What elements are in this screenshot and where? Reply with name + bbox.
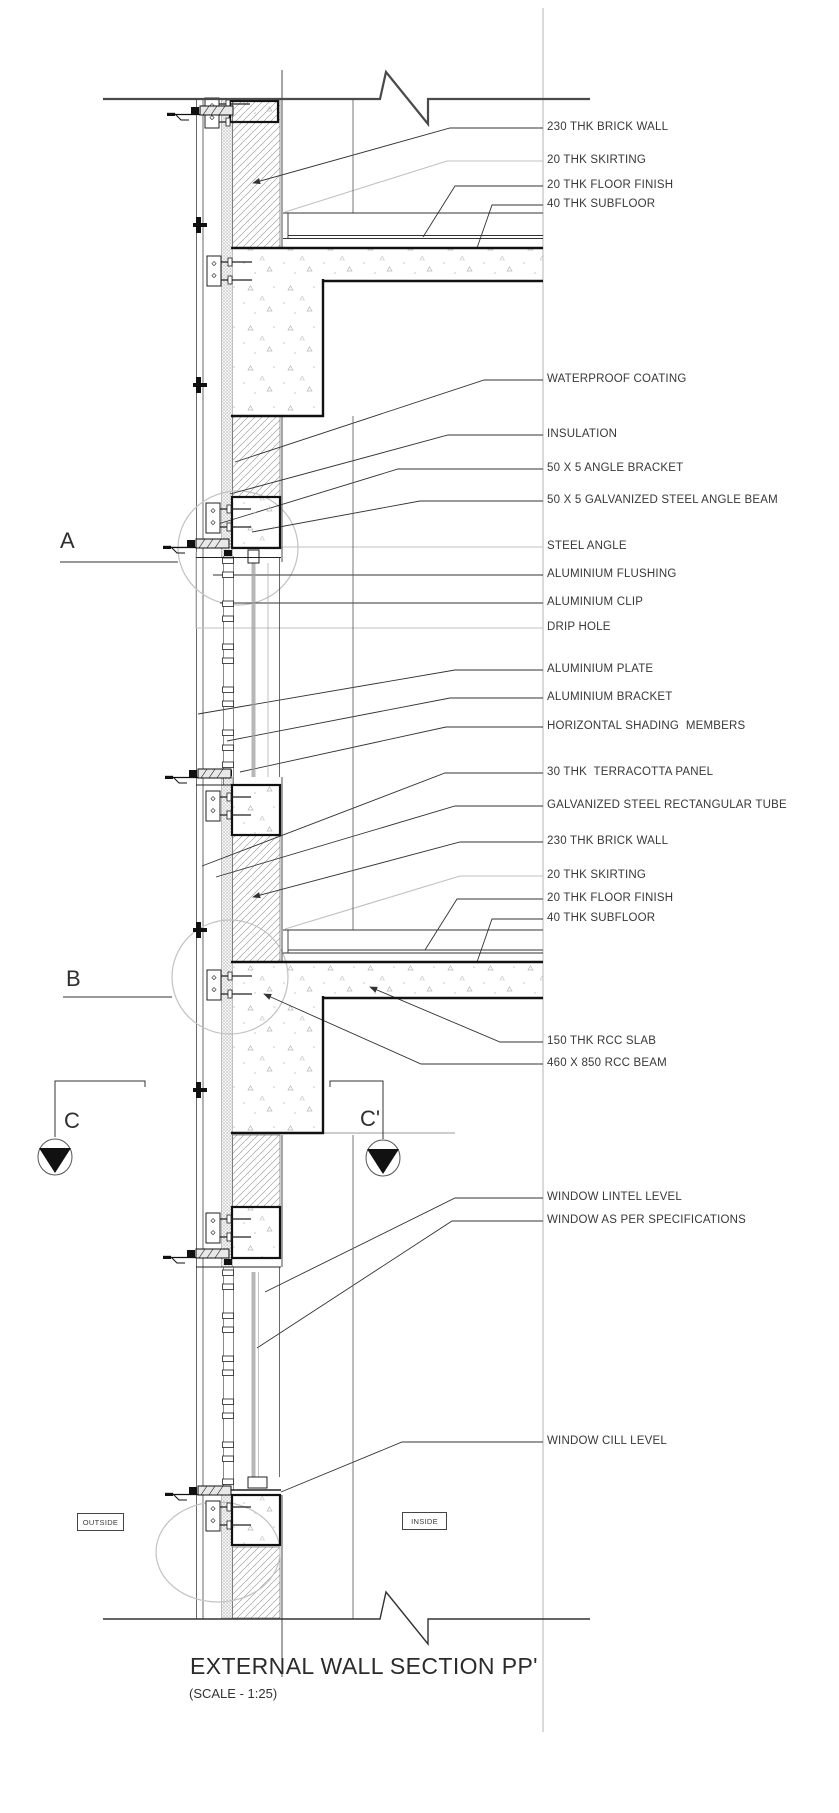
callout-label: 50 X 5 ANGLE BRACKET xyxy=(547,462,683,475)
drawing-scale-note: (SCALE - 1:25) xyxy=(189,1686,277,1701)
callout-label: ALUMINIUM BRACKET xyxy=(547,691,672,704)
callout-label: HORIZONTAL SHADING MEMBERS xyxy=(547,720,745,733)
callout-label: 50 X 5 GALVANIZED STEEL ANGLE BEAM xyxy=(547,494,778,507)
section-arrow-c xyxy=(38,1139,72,1175)
callout-label: STEEL ANGLE xyxy=(547,540,627,553)
section-marker-a: A xyxy=(60,530,75,552)
drawing-title: EXTERNAL WALL SECTION PP' xyxy=(190,1653,538,1680)
callout-label: 230 THK BRICK WALL xyxy=(547,121,668,134)
facade-anchors xyxy=(193,217,207,1098)
section-marker-b: B xyxy=(66,968,81,990)
callout-label: INSULATION xyxy=(547,428,617,441)
terracotta-panel-plane xyxy=(197,99,204,1619)
callout-label: 40 THK SUBFLOOR xyxy=(547,198,655,211)
callout-label: 20 THK FLOOR FINISH xyxy=(547,179,673,192)
callout-label: ALUMINIUM CLIP xyxy=(547,596,643,609)
callout-label: ALUMINIUM PLATE xyxy=(547,663,653,676)
callout-label: 150 THK RCC SLAB xyxy=(547,1035,656,1048)
callout-label: DRIP HOLE xyxy=(547,621,611,634)
callout-label: 20 THK SKIRTING xyxy=(547,869,646,882)
callout-label: 40 THK SUBFLOOR xyxy=(547,912,655,925)
callout-label: WATERPROOF COATING xyxy=(547,373,686,386)
break-line-bottom xyxy=(103,1592,590,1644)
section-marker-c-prime: C' xyxy=(360,1108,380,1130)
outside-label-box: OUTSIDE xyxy=(77,1513,124,1531)
callout-label: GALVANIZED STEEL RECTANGULAR TUBE xyxy=(547,799,787,812)
callout-label: WINDOW LINTEL LEVEL xyxy=(547,1191,682,1204)
callout-label: 20 THK FLOOR FINISH xyxy=(547,892,673,905)
wall-section-drawing xyxy=(0,0,839,1813)
callout-label: WINDOW CILL LEVEL xyxy=(547,1435,667,1448)
callout-label: 30 THK TERRACOTTA PANEL xyxy=(547,766,713,779)
callout-label: ALUMINIUM FLUSHING xyxy=(547,568,676,581)
callout-label: 230 THK BRICK WALL xyxy=(547,835,668,848)
callout-label: WINDOW AS PER SPECIFICATIONS xyxy=(547,1214,746,1227)
wall-section-sheet: 230 THK BRICK WALL 20 THK SKIRTING 20 TH… xyxy=(0,0,839,1813)
section-arrow-c-prime xyxy=(366,1140,400,1176)
break-line-top xyxy=(103,72,590,124)
callout-label: 460 X 850 RCC BEAM xyxy=(547,1057,667,1070)
callout-label: 20 THK SKIRTING xyxy=(547,154,646,167)
section-marker-c: C xyxy=(64,1110,80,1132)
inside-label-box: INSIDE xyxy=(402,1512,447,1530)
section-marker-lines xyxy=(55,562,383,1139)
